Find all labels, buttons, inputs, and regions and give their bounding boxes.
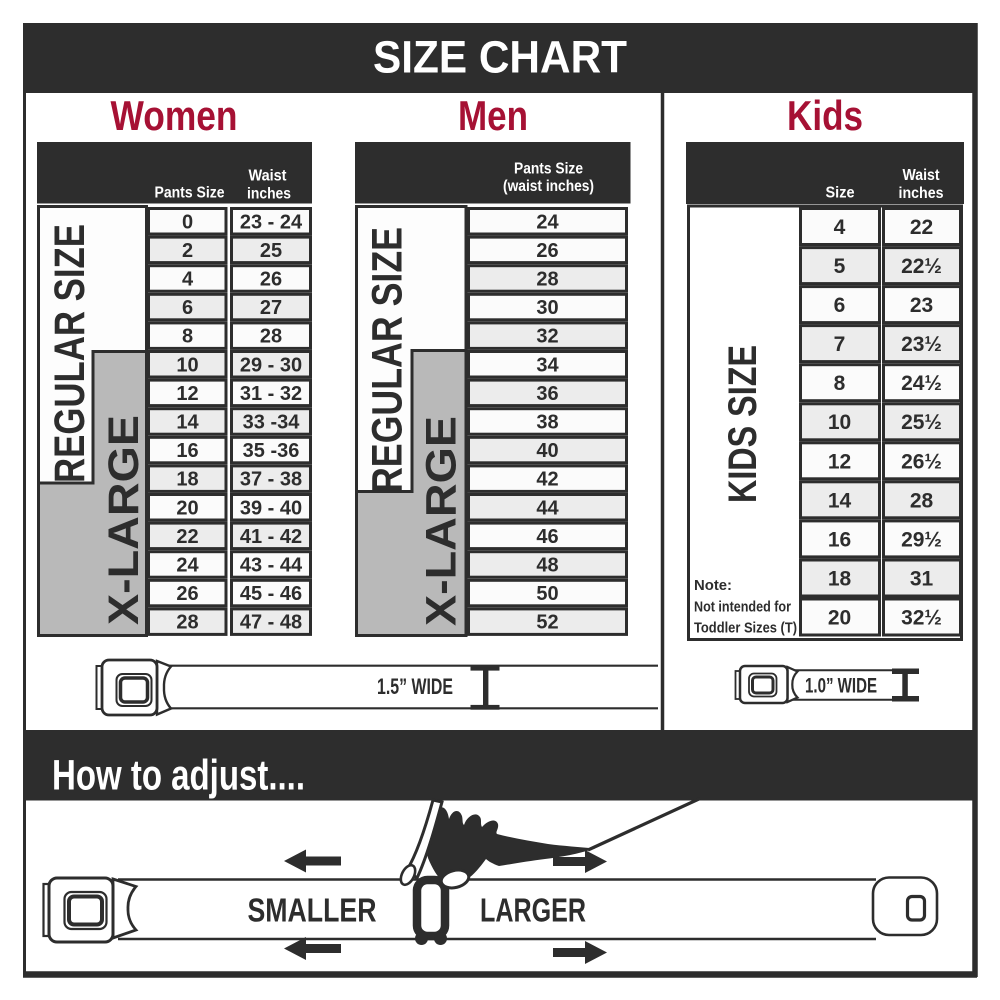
svg-text:22½: 22½ <box>901 255 942 278</box>
svg-text:Men: Men <box>458 92 528 139</box>
svg-text:24½: 24½ <box>901 372 942 395</box>
svg-text:45 - 46: 45 - 46 <box>240 583 302 605</box>
svg-text:26½: 26½ <box>901 450 942 473</box>
svg-text:24: 24 <box>536 211 559 233</box>
svg-text:43 - 44: 43 - 44 <box>240 555 303 577</box>
svg-text:20: 20 <box>176 497 198 519</box>
svg-text:1.5” WIDE: 1.5” WIDE <box>377 674 453 699</box>
svg-text:47 - 48: 47 - 48 <box>240 612 302 634</box>
svg-text:38: 38 <box>536 412 558 434</box>
svg-text:Pants Size: Pants Size <box>155 185 225 202</box>
svg-text:Waist: Waist <box>903 167 940 184</box>
svg-text:(waist inches): (waist inches) <box>503 178 594 195</box>
svg-text:22: 22 <box>910 216 933 239</box>
svg-text:35 -36: 35 -36 <box>243 440 300 462</box>
svg-text:42: 42 <box>536 469 558 491</box>
svg-text:26: 26 <box>260 269 282 291</box>
svg-text:KIDS SIZE: KIDS SIZE <box>721 345 765 503</box>
svg-text:26: 26 <box>536 240 558 262</box>
svg-text:28: 28 <box>176 612 198 634</box>
svg-text:4: 4 <box>834 216 846 239</box>
svg-text:39 - 40: 39 - 40 <box>240 497 302 519</box>
svg-text:4: 4 <box>182 269 194 291</box>
svg-text:28: 28 <box>260 326 282 348</box>
svg-text:8: 8 <box>182 326 193 348</box>
svg-text:inches: inches <box>899 185 944 202</box>
svg-text:Waist: Waist <box>249 168 287 185</box>
svg-text:Size: Size <box>826 185 855 202</box>
svg-text:5: 5 <box>834 255 846 278</box>
svg-text:SMALLER: SMALLER <box>248 892 377 929</box>
svg-text:46: 46 <box>536 526 558 548</box>
svg-text:Note:: Note: <box>694 577 732 594</box>
svg-text:Women: Women <box>111 92 238 139</box>
svg-text:31 - 32: 31 - 32 <box>240 383 302 405</box>
svg-text:50: 50 <box>536 583 558 605</box>
svg-text:23 - 24: 23 - 24 <box>240 211 303 233</box>
svg-text:14: 14 <box>176 412 199 434</box>
svg-text:37 - 38: 37 - 38 <box>240 469 302 491</box>
svg-text:Pants Size: Pants Size <box>514 161 583 178</box>
svg-text:44: 44 <box>536 497 559 519</box>
svg-text:27: 27 <box>260 297 282 319</box>
svg-text:23: 23 <box>910 294 933 317</box>
svg-text:REGULAR SIZE: REGULAR SIZE <box>46 224 94 483</box>
svg-text:Kids: Kids <box>787 92 863 139</box>
svg-text:inches: inches <box>247 186 291 203</box>
svg-text:30: 30 <box>536 297 558 319</box>
svg-text:18: 18 <box>828 568 852 591</box>
svg-text:X-LARGE: X-LARGE <box>100 415 148 625</box>
svg-text:36: 36 <box>536 383 558 405</box>
svg-text:12: 12 <box>828 450 851 473</box>
svg-text:29½: 29½ <box>901 528 942 551</box>
svg-text:28: 28 <box>536 269 558 291</box>
svg-text:32½: 32½ <box>901 607 942 630</box>
svg-text:34: 34 <box>536 354 559 376</box>
svg-text:16: 16 <box>828 528 851 551</box>
svg-text:12: 12 <box>176 383 198 405</box>
svg-text:20: 20 <box>828 607 851 630</box>
svg-text:6: 6 <box>834 294 846 317</box>
svg-text:40: 40 <box>536 440 558 462</box>
svg-text:14: 14 <box>828 489 852 512</box>
svg-text:Not intended for: Not intended for <box>694 599 791 616</box>
svg-text:29 - 30: 29 - 30 <box>240 354 302 376</box>
svg-text:22: 22 <box>176 526 198 548</box>
svg-text:0: 0 <box>182 211 193 233</box>
svg-text:SIZE CHART: SIZE CHART <box>373 32 627 83</box>
svg-text:28: 28 <box>910 489 934 512</box>
svg-text:10: 10 <box>828 411 851 434</box>
svg-text:LARGER: LARGER <box>480 892 586 929</box>
svg-text:32: 32 <box>536 326 558 348</box>
svg-text:26: 26 <box>176 583 198 605</box>
svg-text:7: 7 <box>834 333 846 356</box>
svg-text:25½: 25½ <box>901 411 942 434</box>
svg-text:41 - 42: 41 - 42 <box>240 526 302 548</box>
svg-text:33 -34: 33 -34 <box>243 412 301 434</box>
svg-text:2: 2 <box>182 240 193 262</box>
svg-text:10: 10 <box>176 354 198 376</box>
svg-text:31: 31 <box>910 568 934 591</box>
svg-text:24: 24 <box>176 555 199 577</box>
svg-text:23½: 23½ <box>901 333 942 356</box>
svg-text:16: 16 <box>176 440 198 462</box>
svg-text:6: 6 <box>182 297 193 319</box>
svg-text:18: 18 <box>176 469 198 491</box>
svg-text:Toddler Sizes (T): Toddler Sizes (T) <box>694 620 797 637</box>
svg-text:REGULAR SIZE: REGULAR SIZE <box>364 227 412 493</box>
svg-text:48: 48 <box>536 555 558 577</box>
svg-text:X-LARGE: X-LARGE <box>418 416 466 626</box>
svg-text:25: 25 <box>260 240 282 262</box>
svg-text:1.0” WIDE: 1.0” WIDE <box>805 675 877 698</box>
svg-text:8: 8 <box>834 372 846 395</box>
svg-text:How to adjust....: How to adjust.... <box>52 752 305 800</box>
svg-text:52: 52 <box>536 612 558 634</box>
